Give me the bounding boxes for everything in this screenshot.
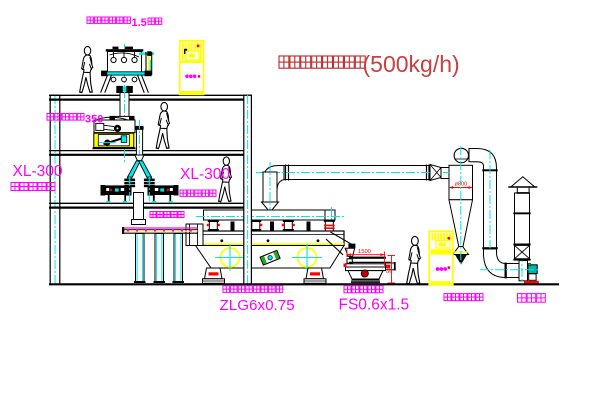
svg-text:350: 350 — [85, 114, 103, 126]
svg-text:FS0.6x1.5: FS0.6x1.5 — [339, 297, 410, 314]
svg-text:540: 540 — [387, 265, 393, 274]
svg-text:XL-300: XL-300 — [13, 163, 63, 180]
svg-text:ZLG6x0.75: ZLG6x0.75 — [220, 297, 295, 314]
svg-text:XL-300: XL-300 — [180, 166, 230, 183]
svg-text:1.5: 1.5 — [132, 17, 147, 29]
svg-text:(500kg/h): (500kg/h) — [363, 51, 460, 77]
